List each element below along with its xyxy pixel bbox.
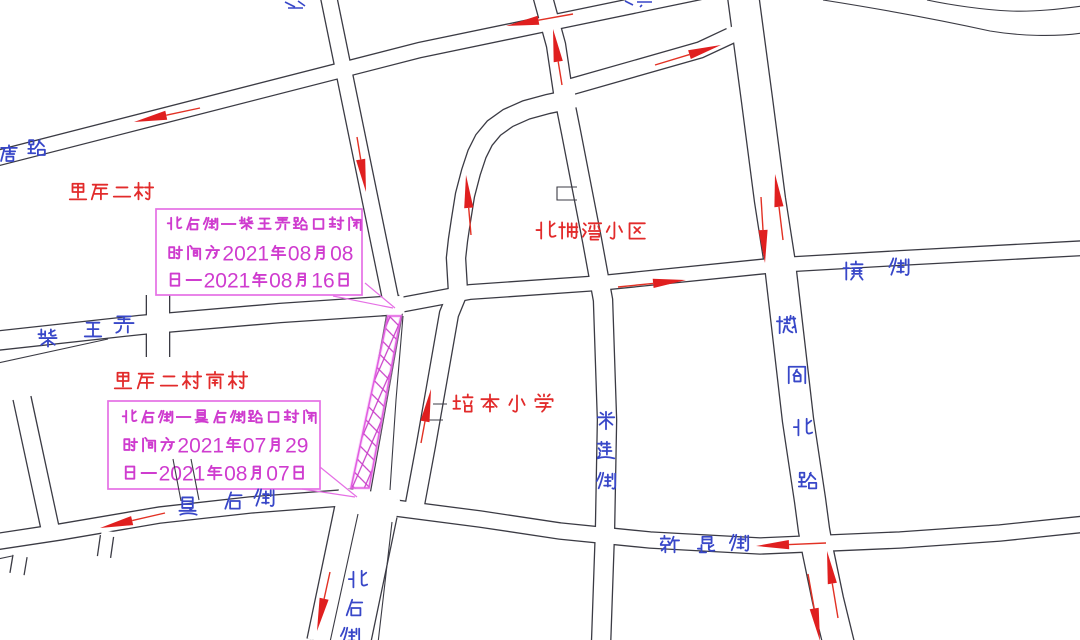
svg-text:07: 07 — [243, 435, 266, 458]
svg-text:2021: 2021 — [159, 463, 206, 486]
svg-text:08: 08 — [224, 463, 247, 486]
svg-text:2021: 2021 — [177, 435, 224, 458]
svg-text:2021: 2021 — [204, 270, 251, 293]
svg-text:29: 29 — [285, 435, 308, 458]
svg-text:08: 08 — [330, 243, 353, 266]
svg-text:08: 08 — [269, 270, 292, 293]
svg-text:08: 08 — [288, 243, 311, 266]
svg-text:07: 07 — [266, 463, 289, 486]
svg-text:2021: 2021 — [222, 243, 269, 266]
svg-text:16: 16 — [311, 270, 334, 293]
